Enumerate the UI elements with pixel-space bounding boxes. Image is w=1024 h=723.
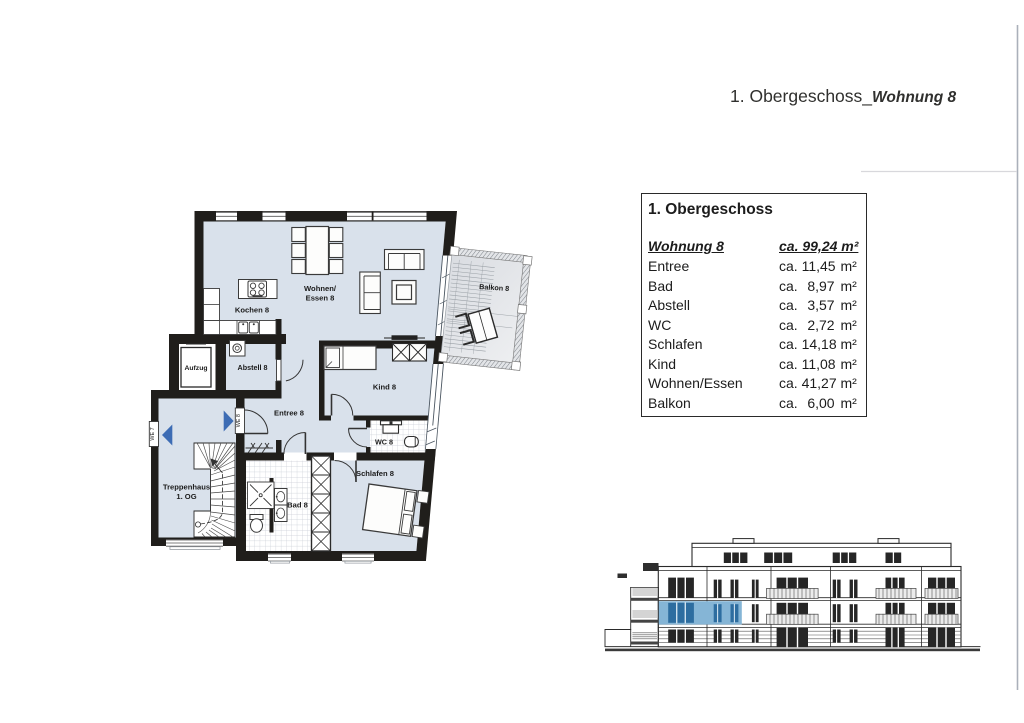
svg-text:WE 7: WE 7 (150, 427, 156, 440)
svg-text:Abstell 8: Abstell 8 (238, 363, 268, 372)
svg-text:Essen 8: Essen 8 (306, 294, 335, 303)
svg-text:Bad 8: Bad 8 (287, 501, 308, 510)
svg-text:WE 8: WE 8 (236, 414, 242, 427)
svg-text:Kind 8: Kind 8 (373, 383, 396, 392)
svg-text:Kochen 8: Kochen 8 (235, 306, 269, 315)
svg-text:Aufzug: Aufzug (184, 365, 207, 372)
svg-text:WC 8: WC 8 (375, 438, 393, 447)
svg-text:Entree 8: Entree 8 (274, 409, 304, 418)
svg-text:Schlafen 8: Schlafen 8 (356, 469, 394, 478)
svg-text:Wohnen/: Wohnen/ (304, 284, 337, 293)
svg-text:1. OG: 1. OG (176, 492, 196, 501)
svg-text:Treppenhaus: Treppenhaus (163, 483, 210, 492)
